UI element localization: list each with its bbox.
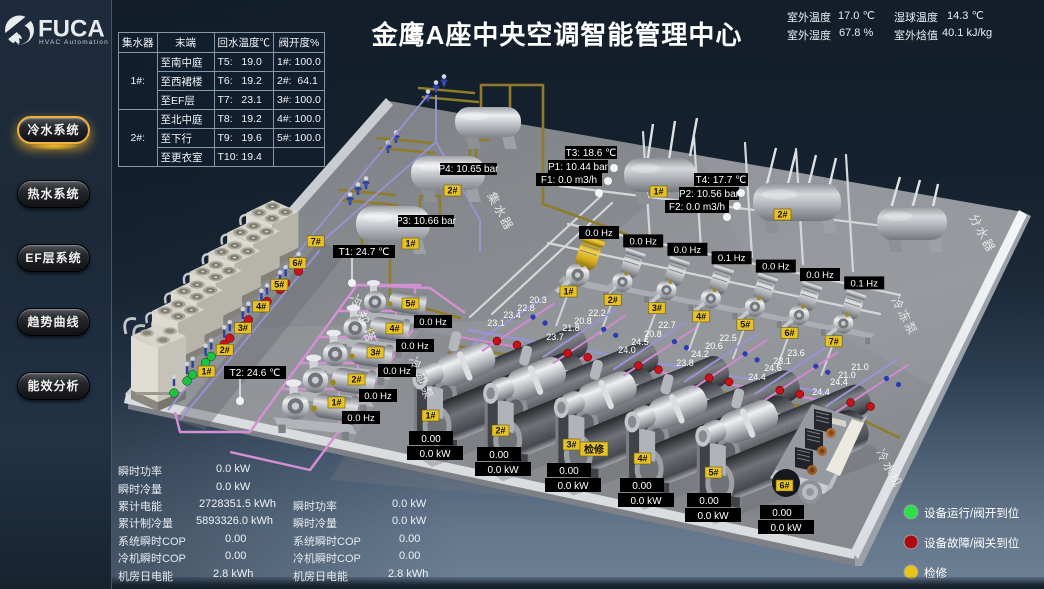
svg-text:2#: 2# bbox=[220, 345, 230, 355]
svg-text:24.4: 24.4 bbox=[812, 387, 830, 397]
svg-text:检修: 检修 bbox=[584, 443, 605, 456]
svg-text:2#: 2# bbox=[351, 375, 361, 385]
svg-text:0.00: 0.00 bbox=[489, 450, 509, 461]
svg-text:T4: 17.7 ℃: T4: 17.7 ℃ bbox=[696, 175, 747, 186]
svg-text:1#: 1# bbox=[405, 239, 415, 249]
svg-text:3#: 3# bbox=[370, 348, 380, 358]
svg-text:0.0 Hz: 0.0 Hz bbox=[364, 391, 392, 402]
svg-text:23.8: 23.8 bbox=[676, 358, 694, 368]
svg-text:3#: 3# bbox=[238, 323, 248, 333]
svg-text:P2: 10.56 bar: P2: 10.56 bar bbox=[679, 189, 740, 200]
svg-text:3#: 3# bbox=[566, 440, 576, 450]
svg-text:F2: 0.0 m3/h: F2: 0.0 m3/h bbox=[669, 202, 725, 213]
svg-text:0.0 kW: 0.0 kW bbox=[697, 511, 729, 522]
svg-text:24.4: 24.4 bbox=[748, 372, 766, 382]
svg-text:T2: 24.6 ℃: T2: 24.6 ℃ bbox=[230, 368, 281, 379]
svg-text:0.0 Hz: 0.0 Hz bbox=[419, 317, 447, 328]
svg-text:1#: 1# bbox=[653, 187, 663, 197]
svg-text:23.4: 23.4 bbox=[503, 310, 521, 320]
svg-text:0.0 Hz: 0.0 Hz bbox=[585, 228, 613, 239]
svg-text:1#: 1# bbox=[563, 287, 573, 297]
svg-text:7#: 7# bbox=[829, 336, 839, 346]
svg-text:3#: 3# bbox=[652, 303, 662, 313]
svg-text:24.2: 24.2 bbox=[691, 349, 709, 359]
svg-text:5#: 5# bbox=[274, 280, 284, 290]
svg-text:0.0 Hz: 0.0 Hz bbox=[383, 366, 411, 377]
svg-text:P1: 10.44 bar: P1: 10.44 bar bbox=[548, 162, 609, 173]
svg-text:0.00: 0.00 bbox=[559, 466, 579, 477]
svg-text:0.0 kW: 0.0 kW bbox=[487, 465, 519, 476]
svg-text:1#: 1# bbox=[331, 398, 341, 408]
svg-text:5#: 5# bbox=[740, 320, 750, 330]
svg-text:0.0 Hz: 0.0 Hz bbox=[762, 262, 790, 273]
svg-text:0.0 kW: 0.0 kW bbox=[419, 449, 451, 460]
svg-text:4#: 4# bbox=[696, 311, 706, 321]
svg-text:5#: 5# bbox=[405, 299, 415, 309]
svg-text:设备故障/阀关到位: 设备故障/阀关到位 bbox=[924, 536, 1019, 550]
svg-text:0.0 Hz: 0.0 Hz bbox=[401, 341, 429, 352]
svg-text:2#: 2# bbox=[495, 426, 505, 436]
svg-text:6#: 6# bbox=[292, 258, 302, 268]
svg-text:4#: 4# bbox=[637, 454, 647, 464]
svg-text:P3: 10.66 bar: P3: 10.66 bar bbox=[396, 216, 457, 227]
svg-text:7#: 7# bbox=[311, 236, 321, 246]
svg-text:T3: 18.6 ℃: T3: 18.6 ℃ bbox=[566, 148, 617, 159]
svg-text:24.4: 24.4 bbox=[830, 377, 848, 387]
svg-text:6#: 6# bbox=[779, 481, 789, 491]
svg-text:21.8: 21.8 bbox=[562, 323, 580, 333]
svg-text:1#: 1# bbox=[425, 411, 435, 421]
svg-text:0.00: 0.00 bbox=[699, 496, 719, 507]
svg-text:0.0 Hz: 0.0 Hz bbox=[806, 270, 834, 281]
svg-text:F1: 0.0 m3/h: F1: 0.0 m3/h bbox=[541, 175, 597, 186]
svg-text:设备运行/阀开到位: 设备运行/阀开到位 bbox=[924, 506, 1019, 520]
svg-text:4#: 4# bbox=[256, 301, 266, 311]
svg-text:0.00: 0.00 bbox=[772, 508, 792, 519]
svg-text:T1: 24.7 ℃: T1: 24.7 ℃ bbox=[339, 247, 390, 258]
svg-text:6#: 6# bbox=[784, 328, 794, 338]
svg-text:5#: 5# bbox=[708, 468, 718, 478]
svg-text:P4: 10.65 bar: P4: 10.65 bar bbox=[438, 164, 499, 175]
svg-text:24.6: 24.6 bbox=[764, 363, 782, 373]
svg-text:2#: 2# bbox=[608, 295, 618, 305]
svg-text:0.00: 0.00 bbox=[632, 481, 652, 492]
svg-text:23.7: 23.7 bbox=[546, 332, 564, 342]
svg-text:24.0: 24.0 bbox=[618, 345, 636, 355]
svg-text:0.1 Hz: 0.1 Hz bbox=[850, 278, 878, 289]
svg-text:0.0 Hz: 0.0 Hz bbox=[347, 413, 375, 424]
svg-text:0.0 Hz: 0.0 Hz bbox=[629, 236, 657, 247]
svg-text:1#: 1# bbox=[201, 367, 211, 377]
svg-text:2#: 2# bbox=[777, 210, 787, 220]
svg-text:4#: 4# bbox=[389, 324, 399, 334]
svg-text:0.0 kW: 0.0 kW bbox=[630, 496, 662, 507]
svg-text:0.0 Hz: 0.0 Hz bbox=[674, 245, 702, 256]
svg-text:0.00: 0.00 bbox=[421, 434, 441, 445]
svg-text:23.1: 23.1 bbox=[487, 318, 505, 328]
svg-text:0.0 kW: 0.0 kW bbox=[770, 523, 802, 534]
svg-text:2#: 2# bbox=[447, 186, 457, 196]
svg-text:0.1 Hz: 0.1 Hz bbox=[718, 253, 746, 264]
svg-text:0.0 kW: 0.0 kW bbox=[557, 481, 589, 492]
